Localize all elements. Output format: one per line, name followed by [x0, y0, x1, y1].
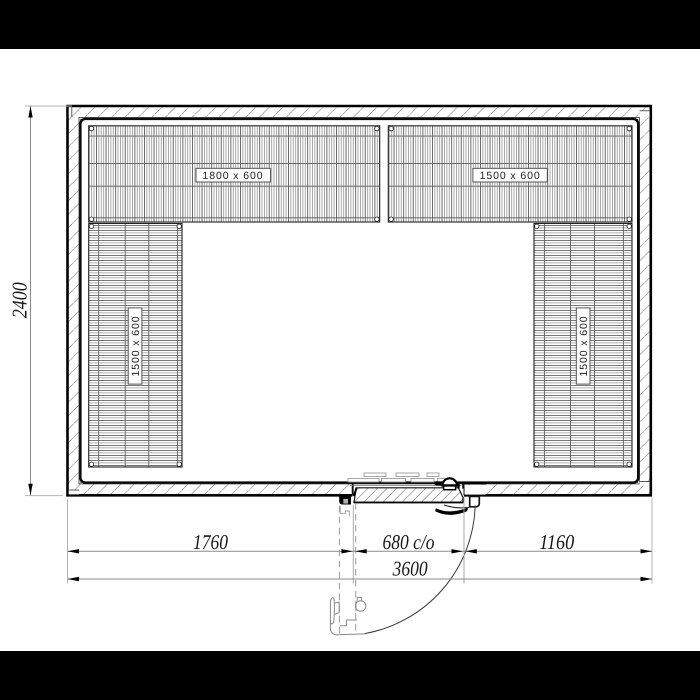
svg-text:1500 x 600: 1500 x 600: [480, 170, 541, 182]
svg-text:1800 x 600: 1800 x 600: [203, 170, 264, 182]
svg-text:1500 x 600: 1500 x 600: [130, 316, 142, 377]
svg-text:2400: 2400: [7, 282, 31, 318]
svg-text:1500 x 600: 1500 x 600: [578, 316, 590, 377]
svg-text:1160: 1160: [539, 530, 574, 554]
svg-text:3600: 3600: [392, 557, 428, 581]
svg-text:1760: 1760: [193, 530, 228, 554]
svg-text:680 c/o: 680 c/o: [383, 530, 435, 554]
